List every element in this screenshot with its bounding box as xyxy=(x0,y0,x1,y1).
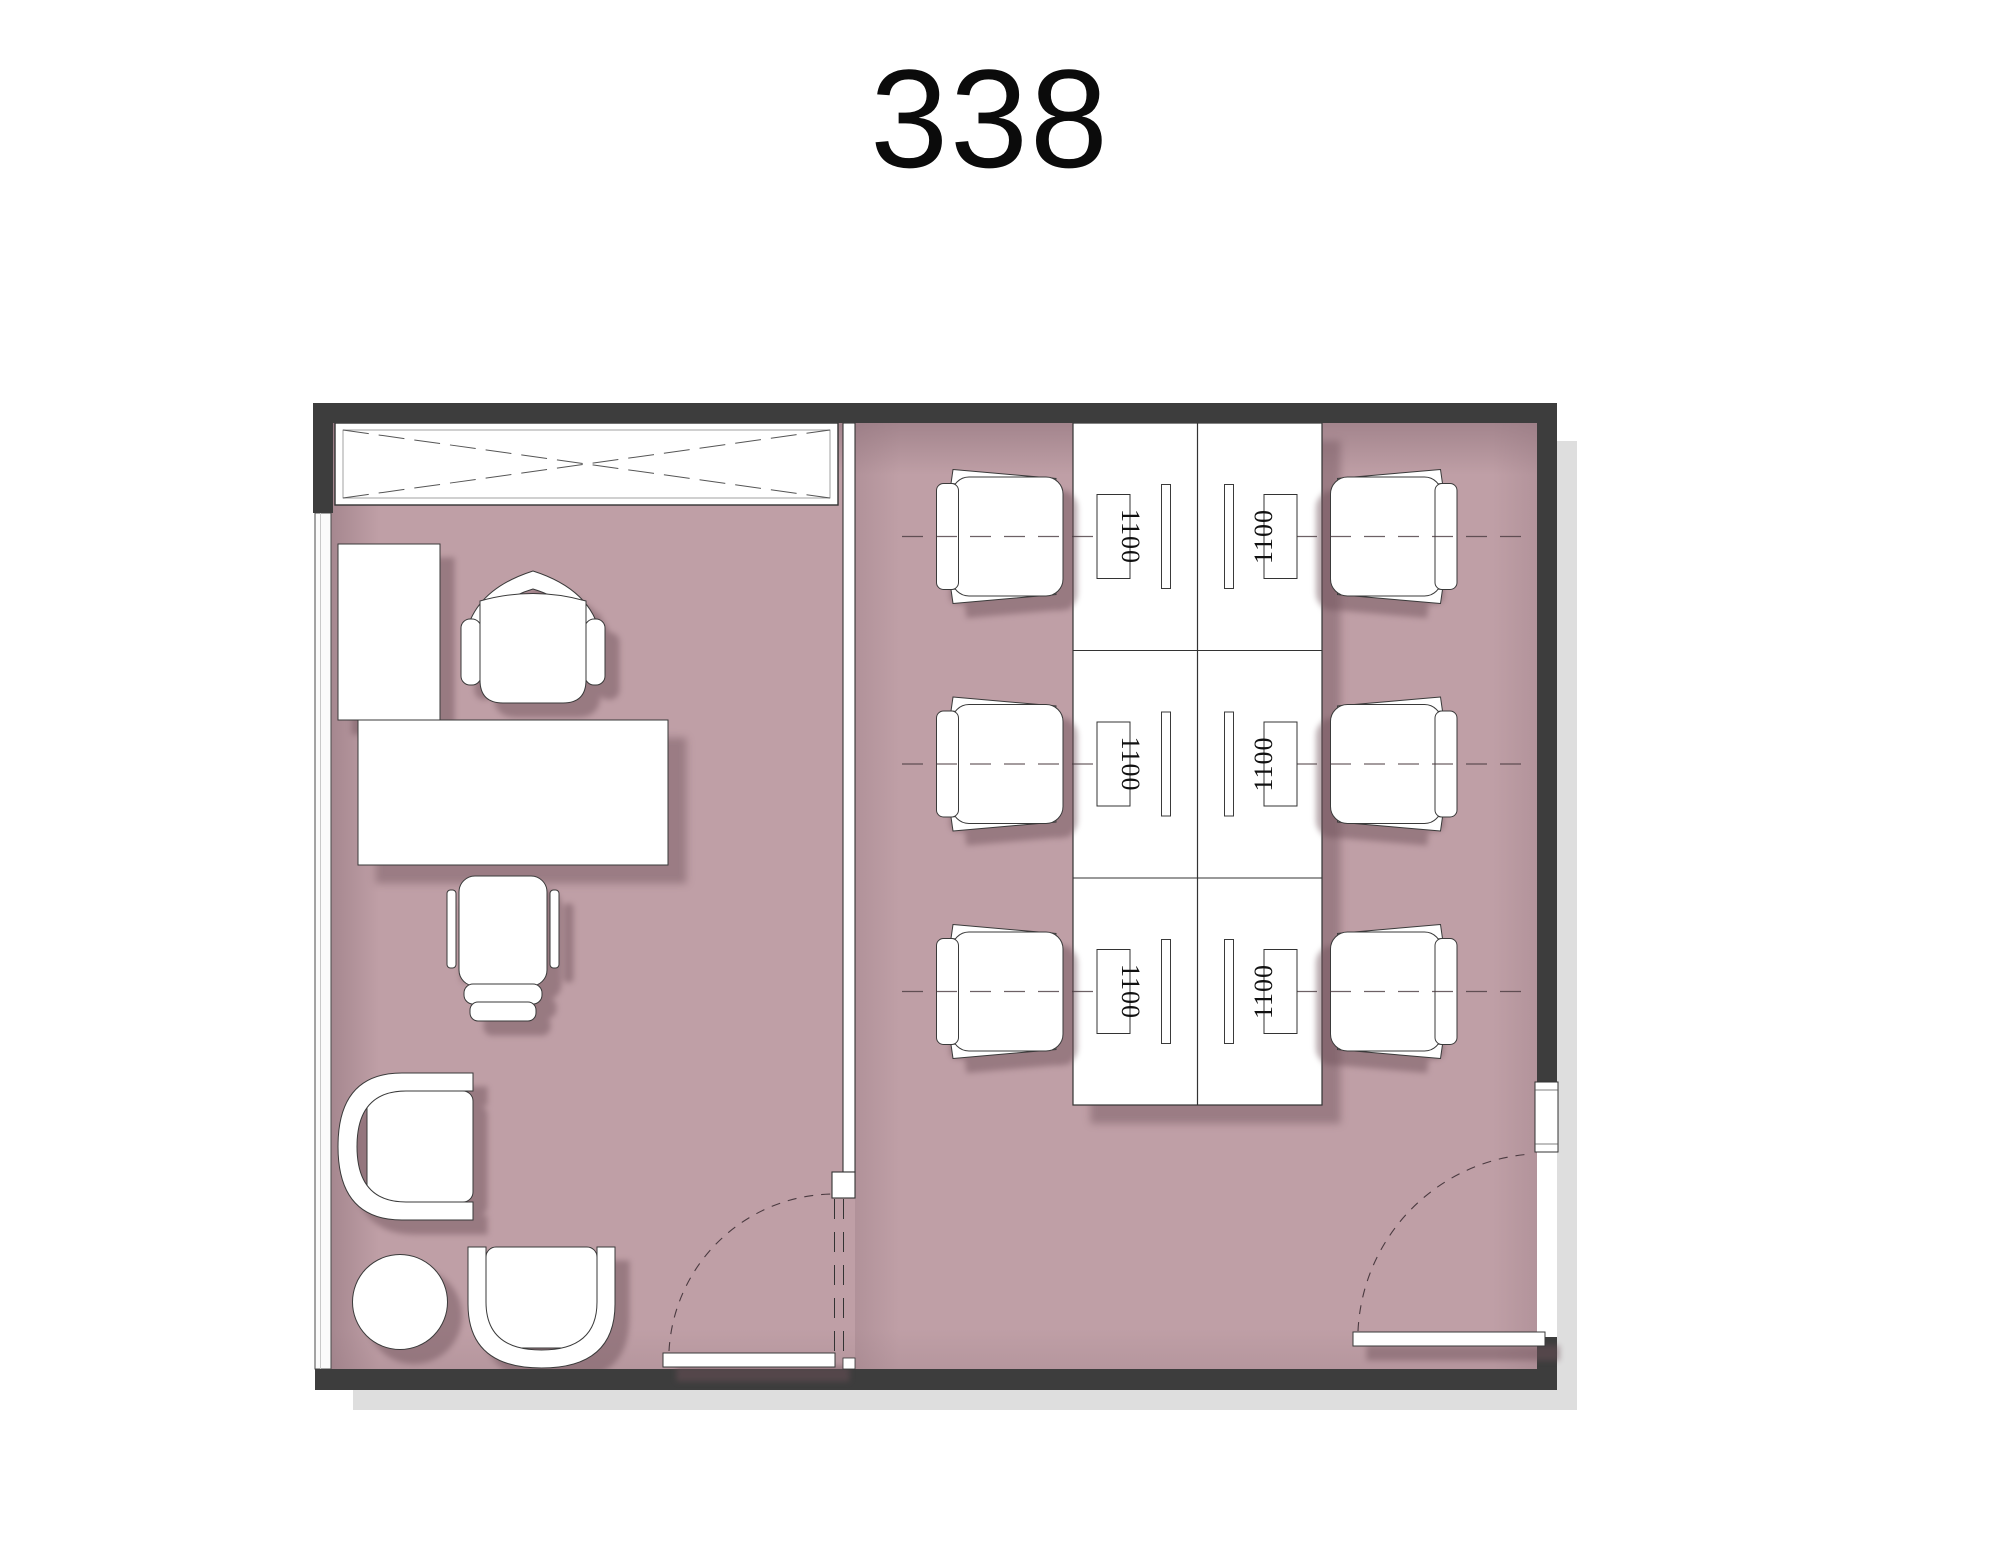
door-jamb-block xyxy=(843,1358,855,1369)
door-frame-right xyxy=(1535,1082,1558,1152)
wall-bottom xyxy=(315,1369,1557,1390)
chair-armrest-right xyxy=(585,619,605,685)
partition-end-post xyxy=(832,1172,855,1198)
storage-cabinet xyxy=(338,544,440,720)
wall-right-upper xyxy=(1537,403,1557,1082)
armchair-seat xyxy=(367,1091,473,1202)
lounge-armchair-north xyxy=(468,1247,615,1368)
door-leaf xyxy=(663,1353,835,1367)
desk-label: 1100 xyxy=(1116,509,1145,564)
glazed-wall-left xyxy=(315,513,331,1369)
round-side-table xyxy=(353,1255,448,1350)
desk-label: 1100 xyxy=(1249,509,1278,564)
floor-plan-drawing: 1100 1100 1100 1100 1100 1100 xyxy=(0,0,2000,1547)
wall-top xyxy=(313,403,1557,423)
door-leaf xyxy=(1353,1332,1545,1346)
floor-plan-page: 338 xyxy=(0,0,2000,1547)
chair-seat xyxy=(480,594,586,704)
visitor-backrest-base xyxy=(470,1002,536,1021)
shadow-bottom xyxy=(353,1390,1577,1410)
visitor-backrest xyxy=(464,984,542,1004)
armchair-seat xyxy=(486,1247,597,1348)
desk-label: 1100 xyxy=(1249,736,1278,791)
crossed-casework-icon xyxy=(335,423,838,505)
visitor-seat xyxy=(459,876,547,986)
floor-shade-right xyxy=(1493,423,1537,1369)
casework-outer xyxy=(335,423,838,505)
chair-armrest-left xyxy=(461,619,481,685)
visitor-armrest-right xyxy=(550,890,559,968)
wall-left-stub xyxy=(313,403,333,513)
shadow-right xyxy=(1557,441,1577,1410)
floor-shade-partition xyxy=(855,423,899,1369)
desk-label: 1100 xyxy=(1249,964,1278,1019)
executive-desk xyxy=(358,720,668,865)
desk-label: 1100 xyxy=(1116,964,1145,1019)
visitor-armrest-left xyxy=(447,890,456,968)
desk-label: 1100 xyxy=(1116,736,1145,791)
